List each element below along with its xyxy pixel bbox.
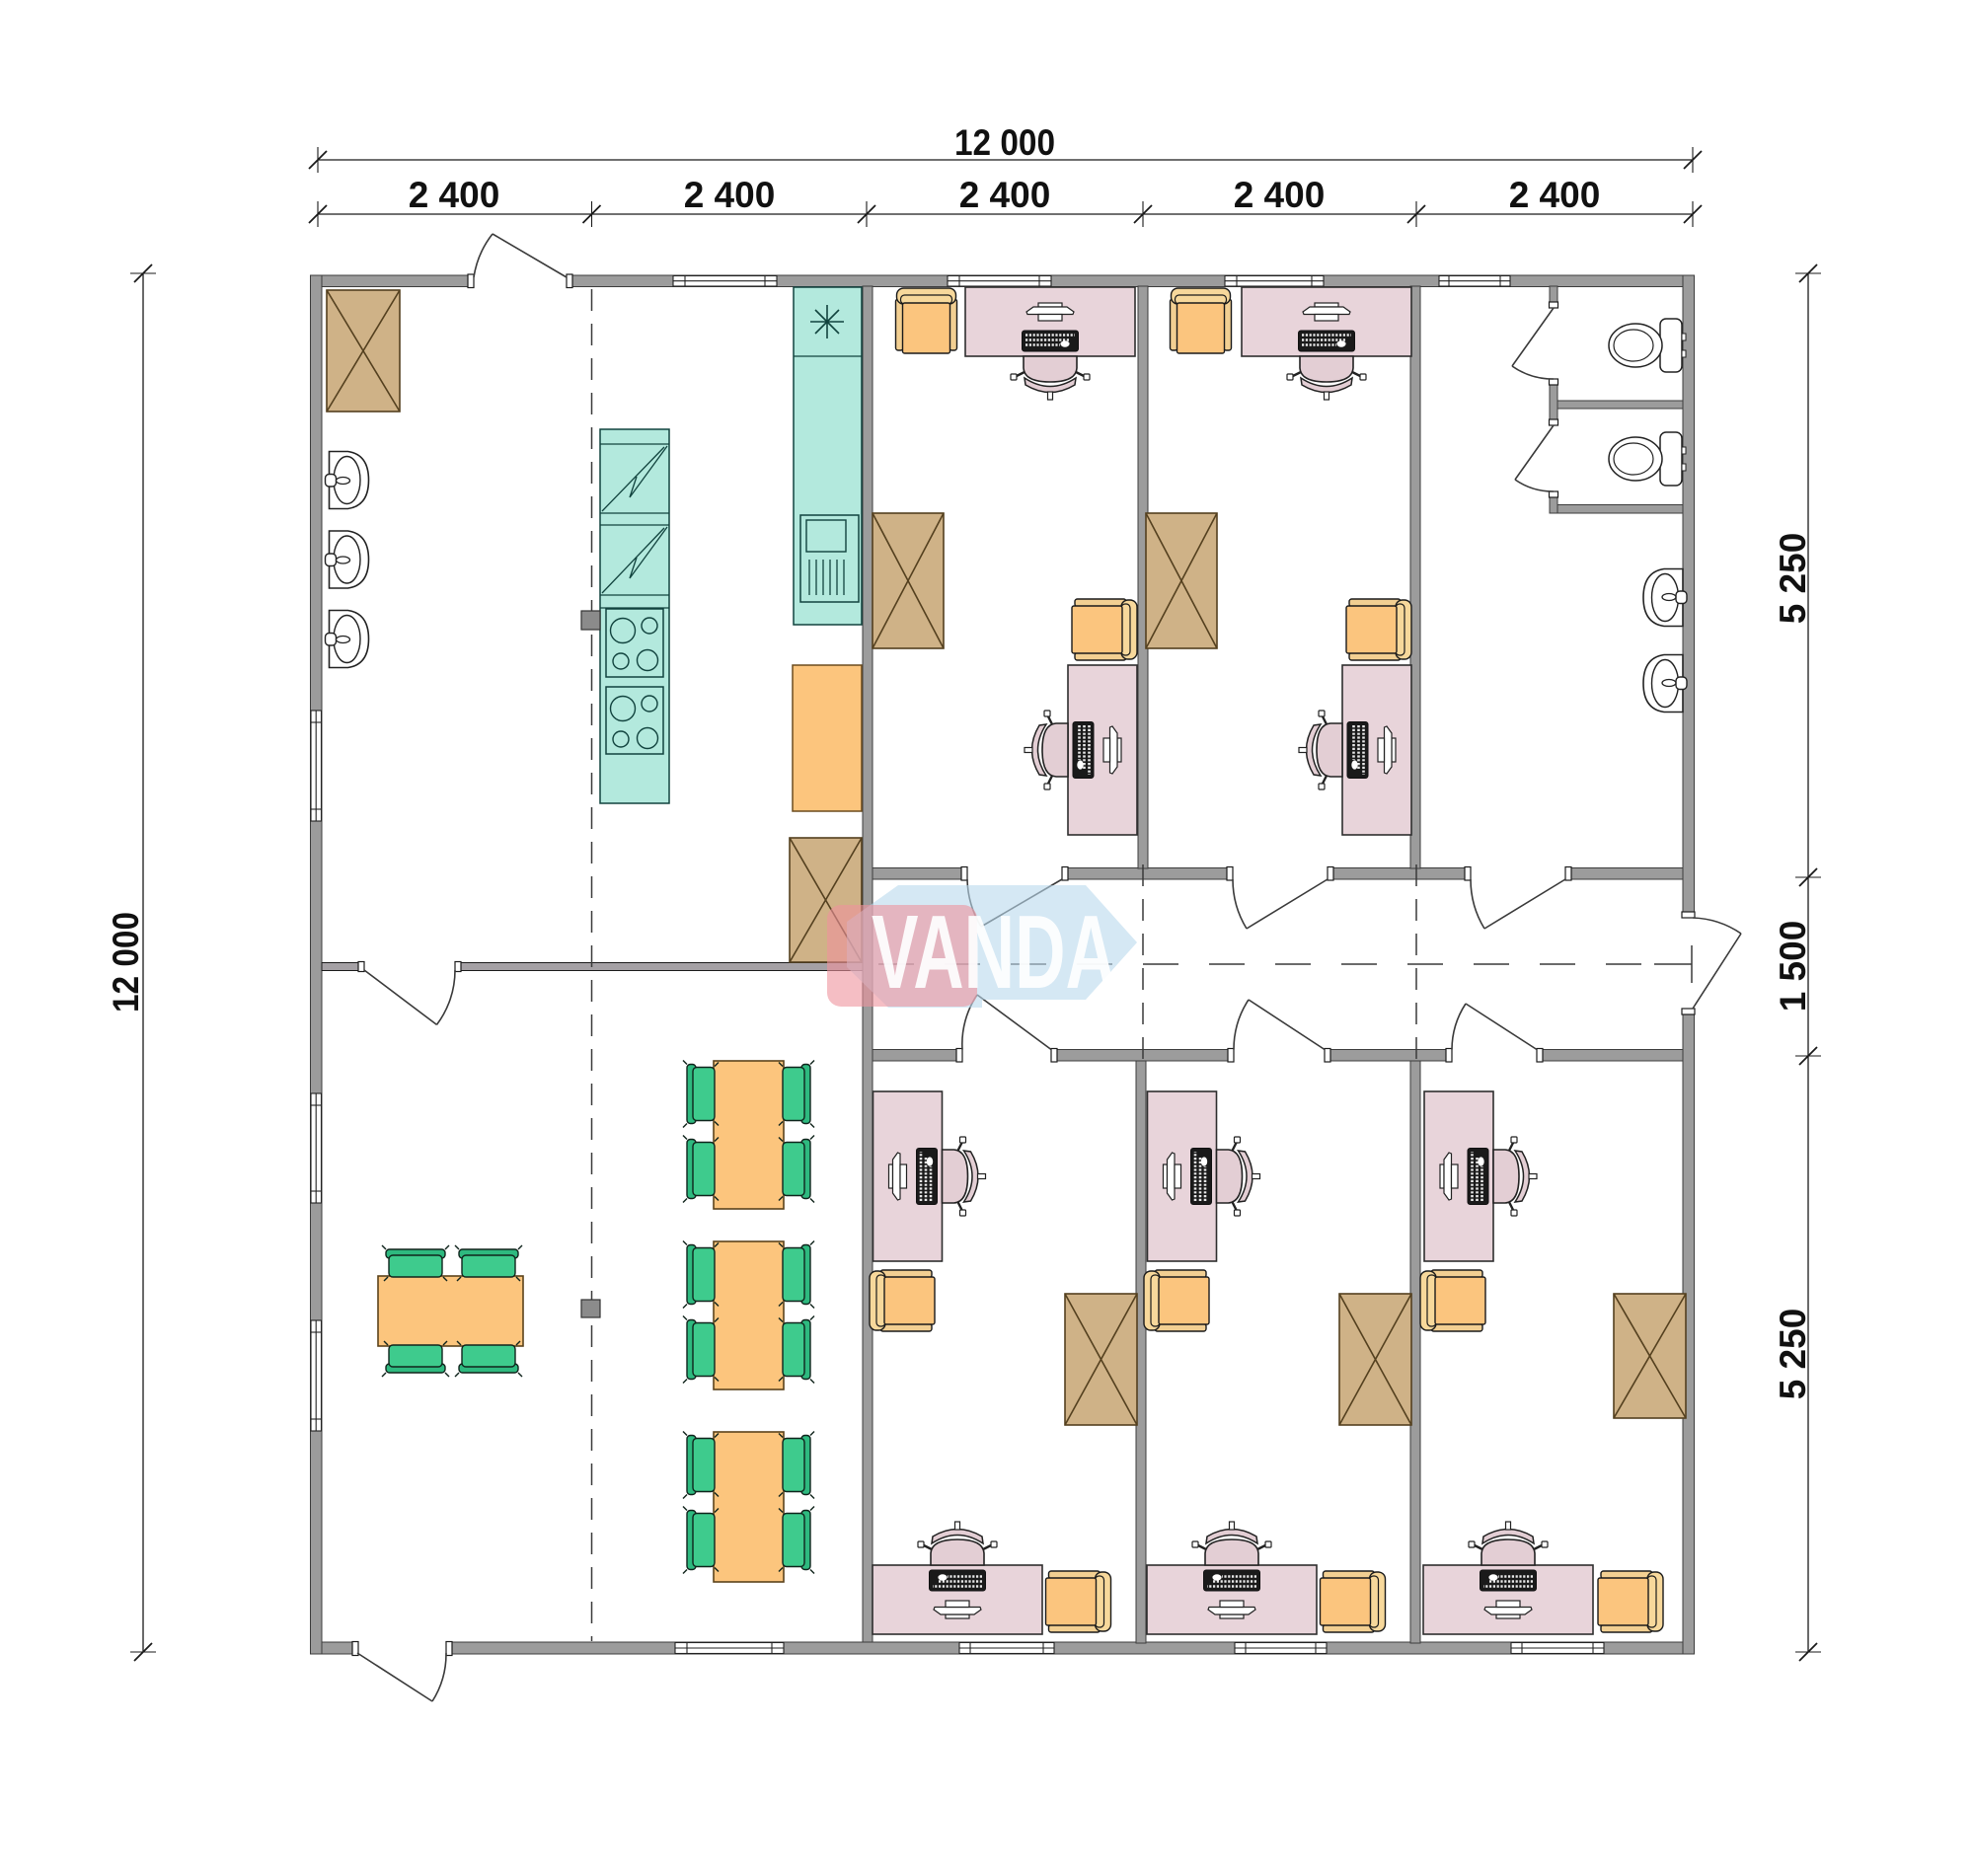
svg-text:2 400: 2 400 xyxy=(409,175,500,215)
svg-text:VANDA: VANDA xyxy=(872,894,1116,1011)
svg-text:2 400: 2 400 xyxy=(1509,175,1601,215)
svg-text:12 000: 12 000 xyxy=(954,122,1055,163)
svg-text:2 400: 2 400 xyxy=(959,175,1051,215)
svg-text:2 400: 2 400 xyxy=(684,175,776,215)
svg-text:12 000: 12 000 xyxy=(106,912,146,1013)
svg-text:5 250: 5 250 xyxy=(1773,1309,1813,1400)
svg-text:5 250: 5 250 xyxy=(1773,533,1813,625)
svg-text:2 400: 2 400 xyxy=(1234,175,1326,215)
svg-text:1 500: 1 500 xyxy=(1773,921,1813,1013)
